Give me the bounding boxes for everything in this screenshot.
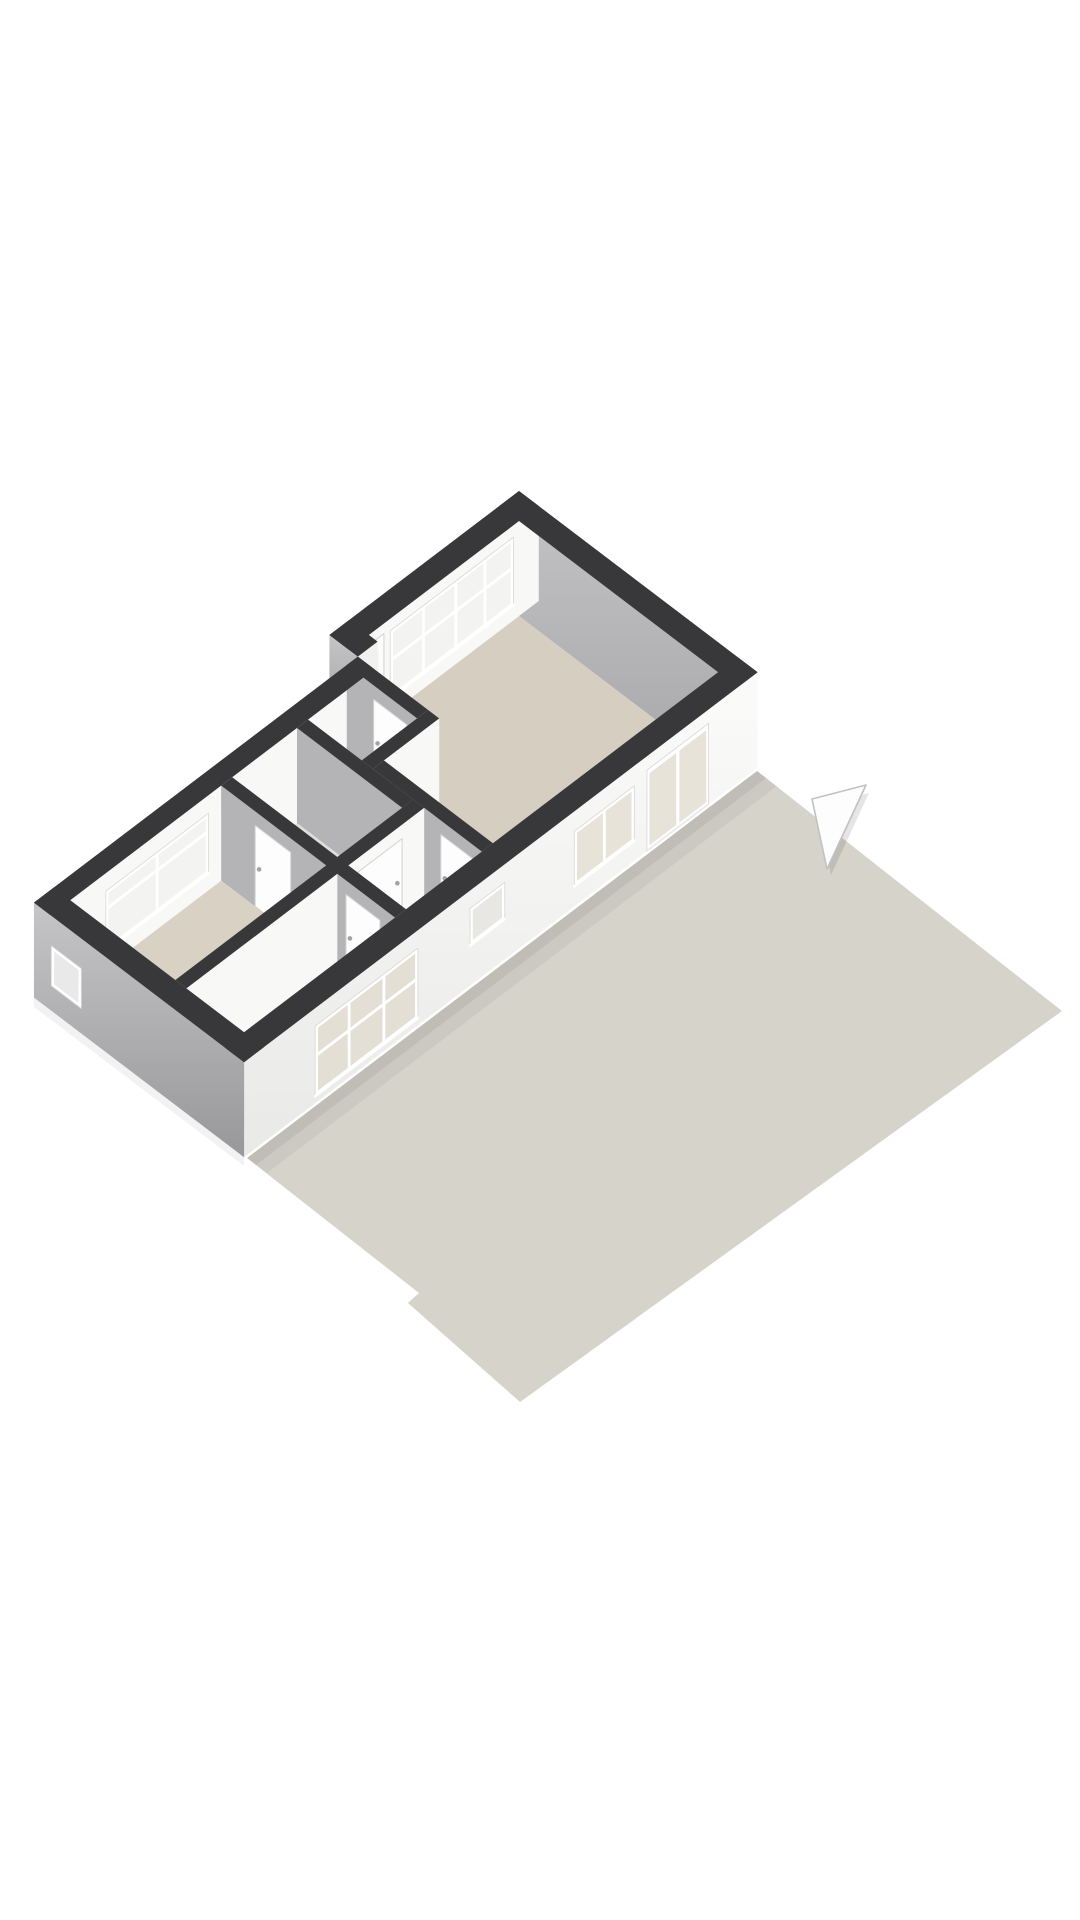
window-mullion [484, 561, 487, 624]
window-mullion [156, 855, 159, 910]
floorplan-canvas[interactable] [0, 0, 1080, 1920]
floorplan-3d-svg [0, 0, 1080, 1920]
window-mullion [422, 608, 425, 671]
window-mullion [348, 1003, 351, 1068]
window-mullion [454, 583, 457, 646]
window-mullion [382, 976, 385, 1041]
window-mullion [603, 811, 606, 861]
